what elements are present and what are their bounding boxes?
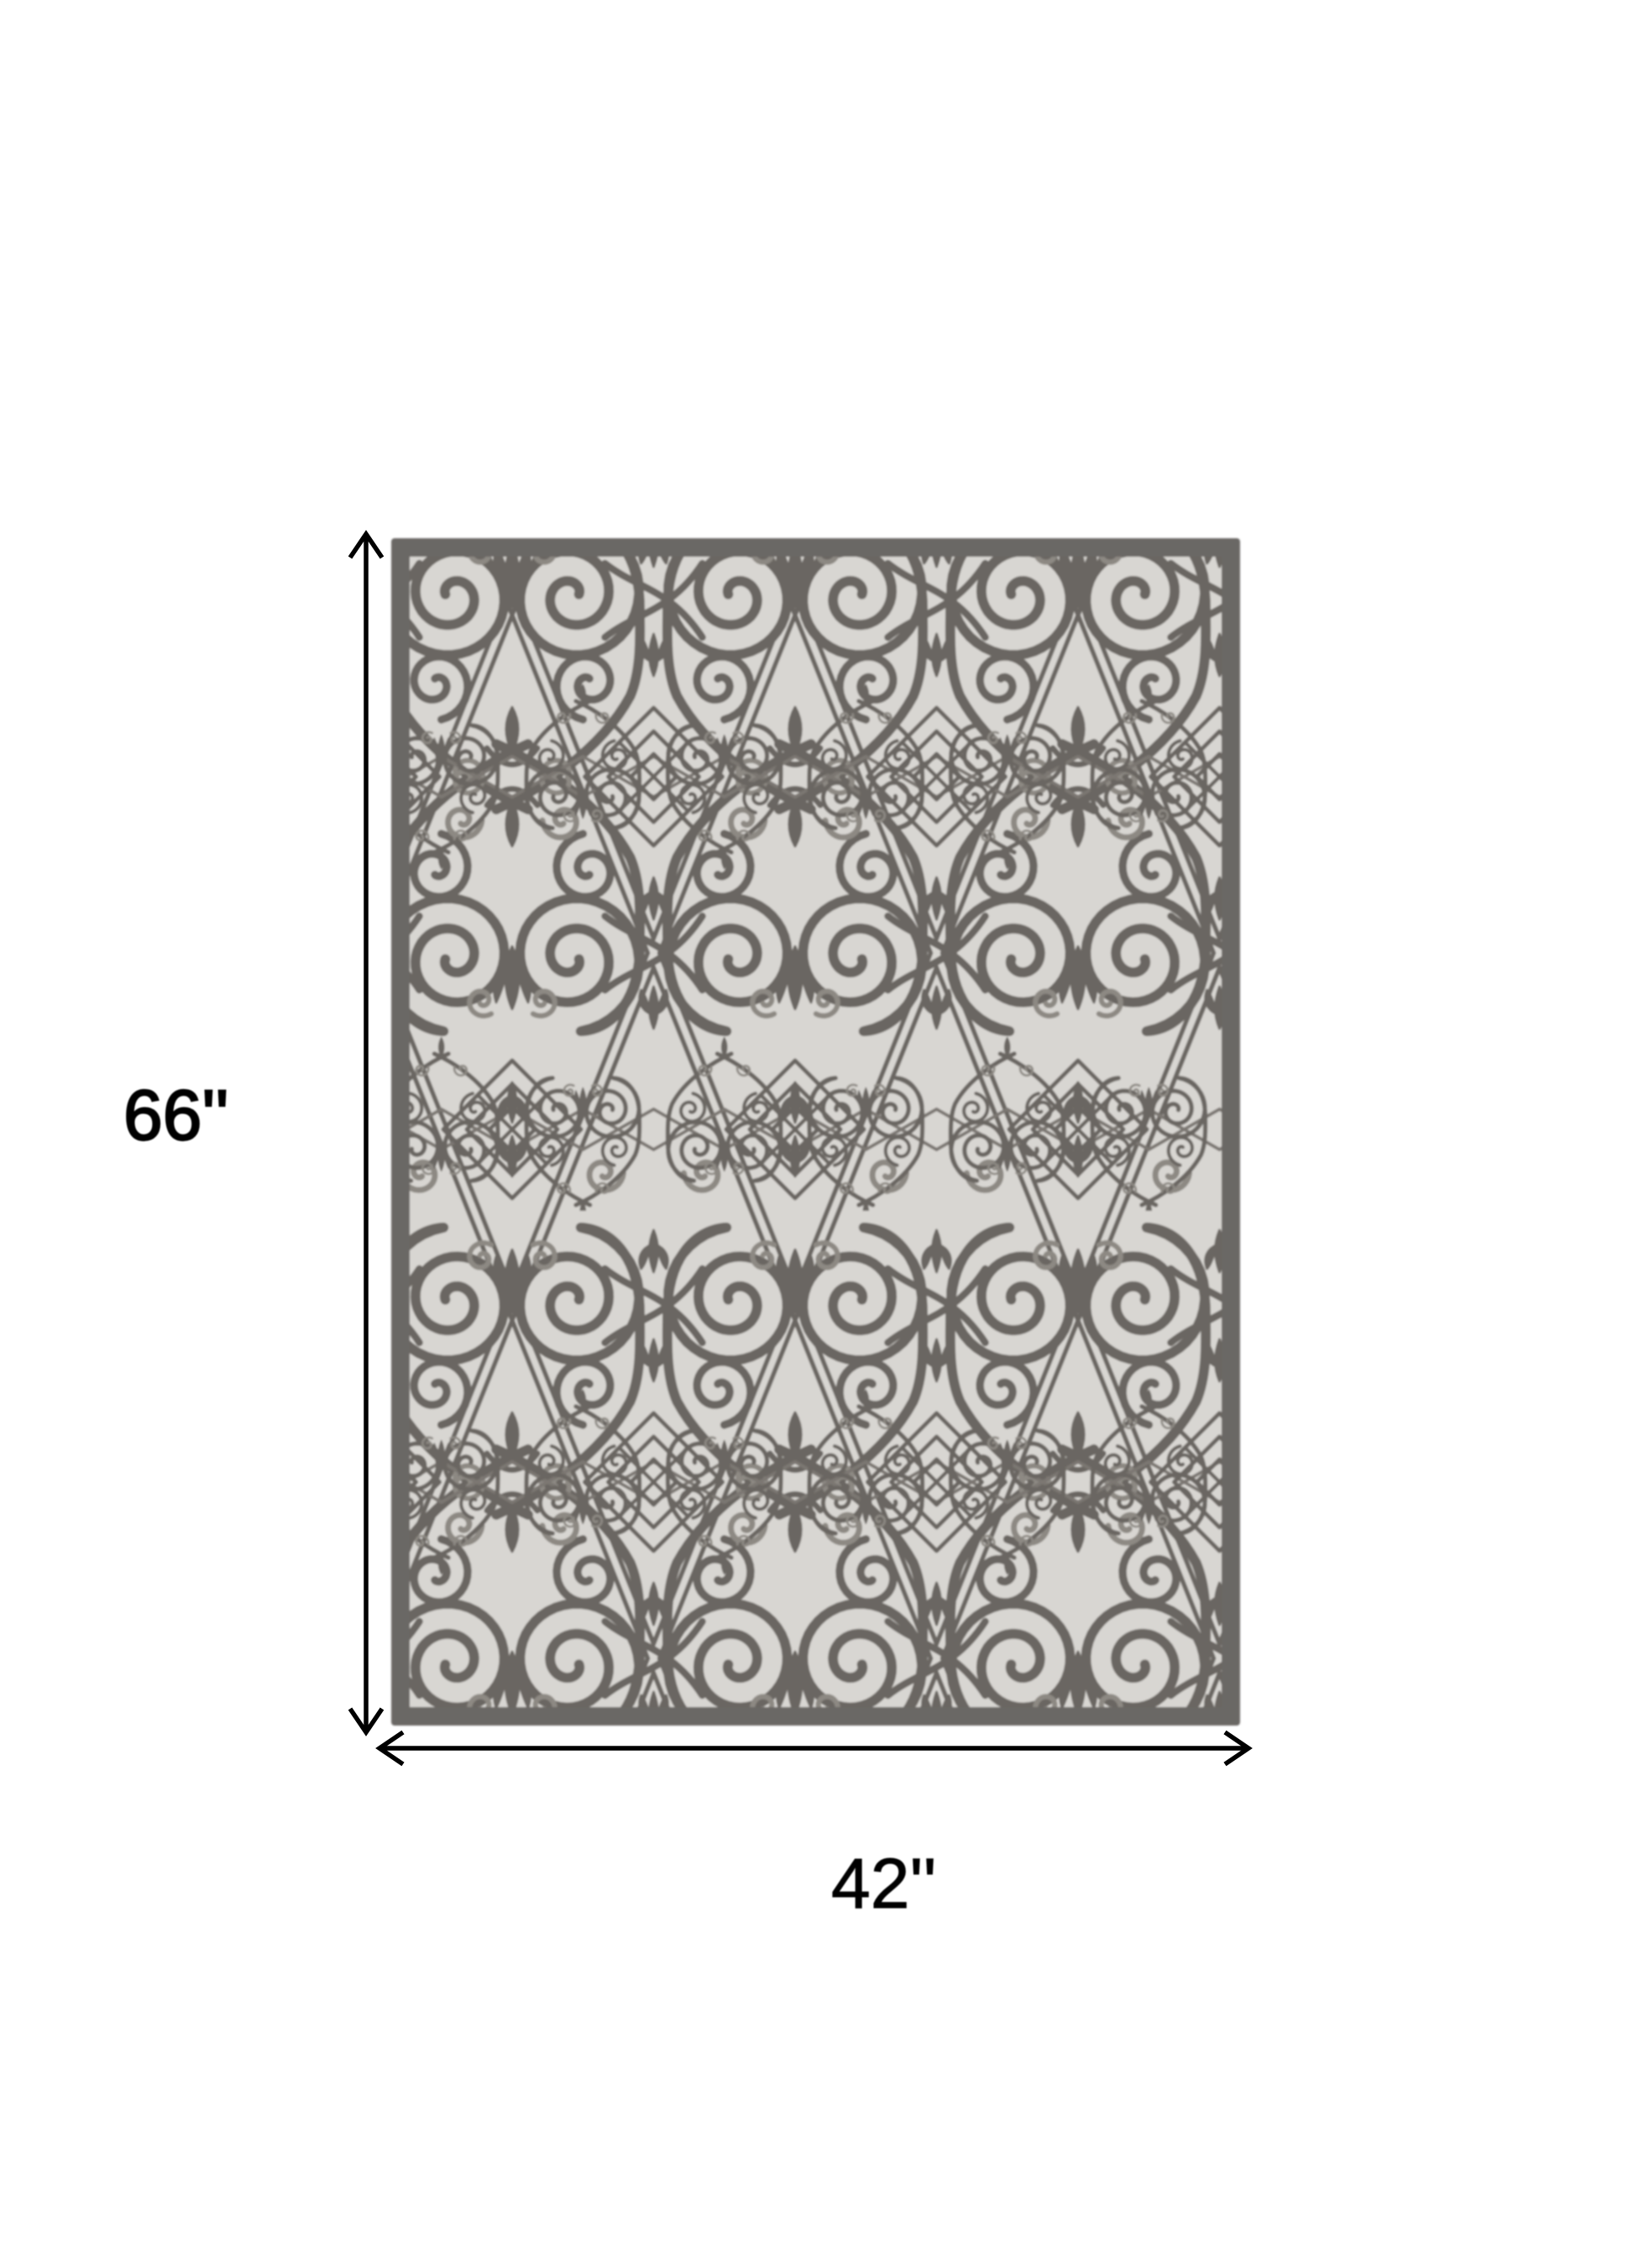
svg-text:42'': 42'' [831, 1844, 937, 1923]
svg-text:66'': 66'' [123, 1076, 229, 1155]
